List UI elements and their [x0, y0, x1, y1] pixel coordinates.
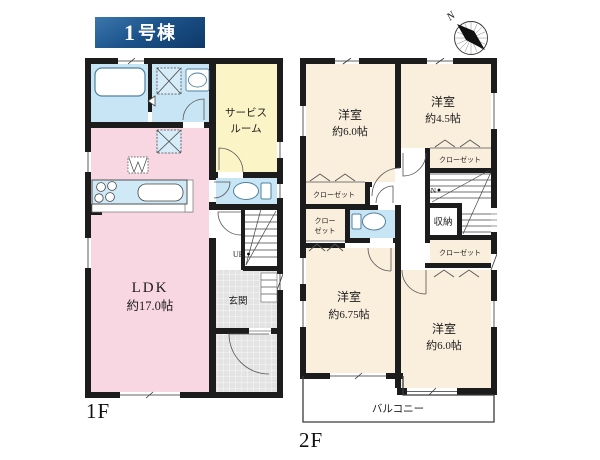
building-suffix: 号棟	[138, 24, 176, 42]
bedroom-ne-size: 約4.5帖	[425, 111, 461, 125]
closet-nw-label: クローゼット	[313, 190, 355, 199]
floor1-label: 1F	[86, 399, 110, 424]
floorplan-canvas: 1 号棟 N	[0, 0, 600, 460]
bedroom-nw-size: 約6.0帖	[332, 124, 368, 138]
floor2-label: 2F	[299, 428, 323, 453]
closet-w-label-1: クロー	[315, 217, 336, 225]
bedroom-ne-label: 洋室	[431, 94, 455, 109]
stairs-down-label: DN	[425, 186, 436, 195]
floor1-plan: サービス ルーム LDK 約17.0帖 玄関 UP	[85, 58, 283, 403]
fridge-space-icon	[157, 130, 181, 153]
bathtub-icon	[95, 68, 145, 96]
ldk-label: LDK	[132, 280, 169, 296]
closet-ne-label: クローゼット	[439, 155, 481, 164]
closet-e-label: クローゼット	[439, 248, 481, 257]
toilet-icon-2f	[352, 213, 386, 230]
compass-north-label: N	[444, 9, 458, 24]
service-room-label-2: ルーム	[230, 123, 261, 135]
bedroom-se-size: 約6.0帖	[426, 338, 462, 352]
washing-machine-icon	[157, 68, 181, 94]
floor2-plan: 洋室 約6.0帖 洋室 約4.5帖 洋室 約6.75帖 洋室 約6.0帖 クロー…	[300, 58, 497, 430]
building-number: 1	[124, 22, 136, 44]
bedroom-nw-label: 洋室	[338, 107, 362, 122]
entrance-porch	[216, 334, 277, 392]
balcony-label: バルコニー	[372, 403, 424, 415]
bedroom-nw	[306, 64, 395, 182]
hatch-box-icon	[128, 157, 148, 173]
storage-label: 収納	[433, 216, 452, 228]
stairs-up-label: UP	[233, 250, 244, 259]
kitchen-sink-icon	[138, 184, 183, 201]
kitchen-counter-icon	[92, 180, 193, 212]
bedroom-sw-size: 約6.75帖	[328, 307, 369, 321]
stairs-up-dot	[247, 253, 250, 256]
vanity-sink-icon	[186, 69, 209, 91]
toilet-icon-1f	[234, 183, 272, 200]
ldk-size-label: 約17.0帖	[127, 298, 174, 313]
service-room-label-1: サービス	[225, 107, 267, 119]
compass-icon: N	[441, 8, 497, 62]
stairs-down-dot	[438, 189, 441, 192]
entrance-label: 玄関	[228, 295, 247, 307]
bedroom-sw-label: 洋室	[337, 289, 361, 304]
building-badge: 1 号棟	[95, 17, 205, 48]
closet-w-label-2: ゼット	[315, 226, 336, 235]
bedroom-se-label: 洋室	[432, 321, 456, 336]
closet-w	[306, 209, 345, 241]
ldk-room	[91, 128, 209, 392]
